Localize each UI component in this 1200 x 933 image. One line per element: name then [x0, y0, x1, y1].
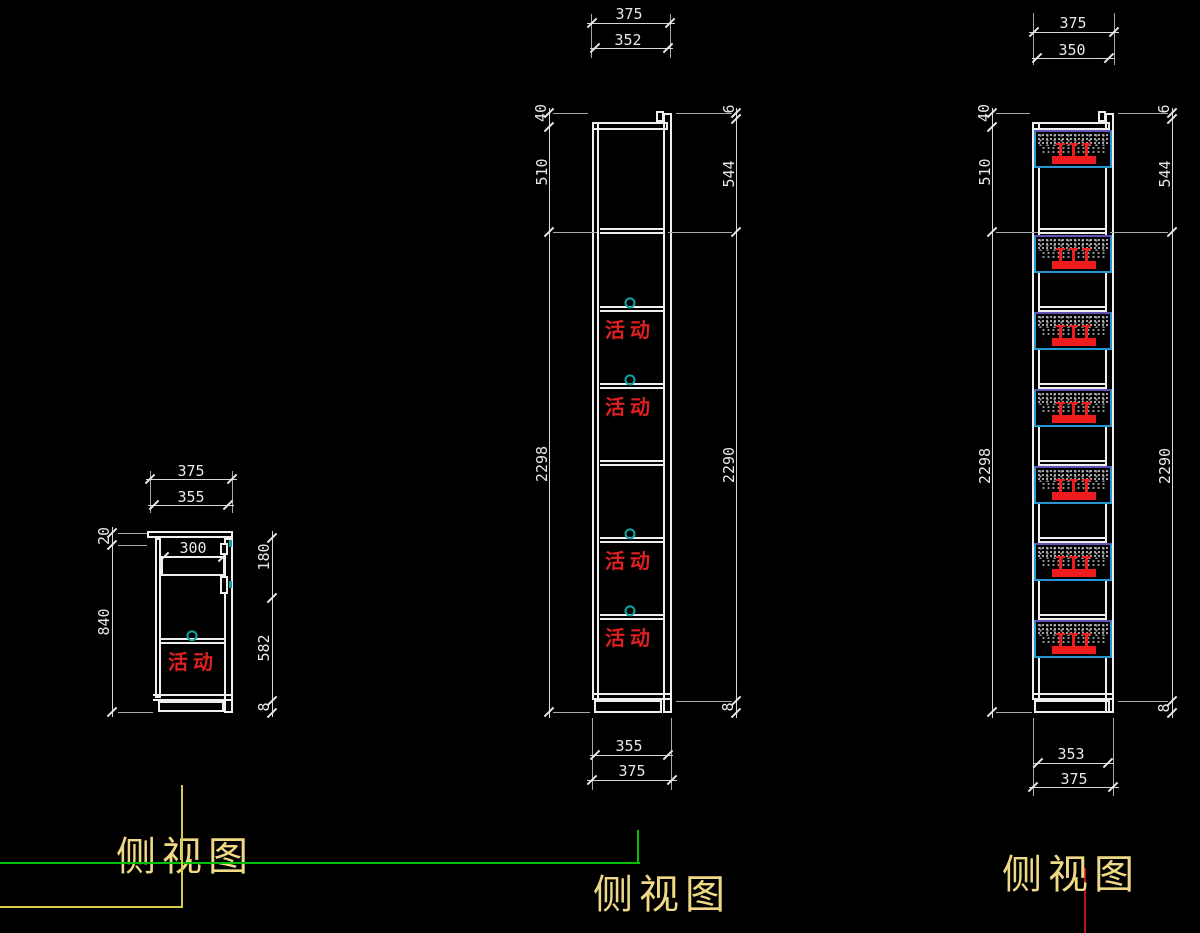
basket-bracket-bar — [1052, 492, 1096, 500]
basket-bracket-bar — [1052, 569, 1096, 577]
dim-text[interactable]: 6 — [1155, 104, 1173, 113]
dim-line — [590, 755, 673, 756]
basket-bracket-bar — [1052, 261, 1096, 269]
basket-bracket-cap — [1069, 556, 1078, 558]
dim-line — [736, 108, 737, 718]
layout-line-yellow-h[interactable] — [0, 906, 183, 908]
view-title[interactable]: 侧视图 — [116, 824, 254, 882]
cad-canvas: 375 355 300 活动 20 840 — [0, 0, 1200, 933]
basket-bracket-cap — [1082, 143, 1091, 145]
cabinet-top-board[interactable] — [1032, 122, 1110, 130]
cabinet-base[interactable] — [594, 700, 662, 713]
cabinet-top-board[interactable] — [592, 122, 668, 130]
shoe-basket[interactable] — [1034, 235, 1112, 273]
dim-text[interactable]: 6 — [720, 104, 738, 113]
extension-line — [668, 232, 732, 233]
basket-bracket-prong — [1059, 145, 1062, 156]
dim-text[interactable]: 2290 — [1156, 448, 1174, 484]
basket-bracket-prong — [1072, 404, 1075, 415]
basket-bracket-prong — [1085, 327, 1088, 338]
basket-bracket-prong — [1085, 558, 1088, 569]
shelf-line — [1040, 460, 1105, 462]
dim-text[interactable]: 840 — [95, 608, 113, 635]
basket-bracket-cap — [1082, 633, 1091, 635]
extension-line — [118, 545, 147, 546]
basket-bracket-prong — [1059, 481, 1062, 492]
shelf-line — [600, 460, 663, 462]
shoe-basket[interactable] — [1034, 543, 1112, 581]
basket-bracket-cap — [1069, 633, 1078, 635]
extension-line — [996, 113, 1030, 114]
cabinet-top-board[interactable] — [147, 531, 233, 538]
view-title[interactable]: 侧视图 — [593, 862, 731, 920]
basket-bracket-cap — [1069, 248, 1078, 250]
dim-text[interactable]: 20 — [95, 527, 113, 545]
dim-line — [549, 108, 550, 718]
shelf-pin-marker — [625, 528, 636, 539]
basket-bracket-prong — [1059, 635, 1062, 646]
dim-text[interactable]: 510 — [976, 158, 994, 185]
basket-bracket-cap — [1056, 248, 1065, 250]
shelf-line — [600, 387, 663, 389]
basket-bracket-cap — [1056, 556, 1065, 558]
extension-line — [1114, 13, 1115, 65]
dim-text[interactable]: 353 — [1057, 745, 1084, 763]
shelf-line — [600, 232, 663, 234]
extension-line — [1118, 701, 1168, 702]
dim-line — [587, 780, 677, 781]
dim-line — [1029, 32, 1119, 33]
extension-line — [1110, 232, 1168, 233]
basket-bracket-prong — [1085, 404, 1088, 415]
basket-bracket-cap — [1069, 402, 1078, 404]
dim-text[interactable]: 375 — [618, 762, 645, 780]
basket-bracket-prong — [1072, 558, 1075, 569]
wall-notch — [220, 576, 228, 594]
extension-line — [118, 712, 153, 713]
basket-bracket-cap — [1056, 479, 1065, 481]
dim-text[interactable]: 8 — [255, 702, 273, 711]
basket-bracket-cap — [1082, 325, 1091, 327]
cabinet-base[interactable] — [1034, 700, 1110, 713]
movable-shelf-label[interactable]: 活动 — [605, 622, 655, 651]
extension-line — [553, 712, 590, 713]
shelf-line — [1040, 232, 1105, 234]
shelf-line — [1040, 614, 1105, 616]
basket-bracket-cap — [1082, 556, 1091, 558]
extension-line — [553, 113, 588, 114]
basket-bracket-cap — [1069, 479, 1078, 481]
dim-text[interactable]: 375 — [615, 5, 642, 23]
movable-shelf-label[interactable]: 活动 — [168, 646, 218, 675]
basket-bracket-prong — [1085, 635, 1088, 646]
shelf-pin-marker — [625, 374, 636, 385]
dim-text[interactable]: 8 — [1155, 703, 1173, 712]
basket-bracket-prong — [1085, 481, 1088, 492]
basket-bracket-prong — [1059, 327, 1062, 338]
shelf-pin-marker — [625, 297, 636, 308]
shelf-line — [600, 464, 663, 466]
dim-text[interactable]: 180 — [255, 543, 273, 570]
dim-text[interactable]: 40 — [532, 104, 550, 122]
dim-text[interactable]: 2298 — [976, 448, 994, 484]
dim-text[interactable]: 510 — [533, 158, 551, 185]
cabinet-base[interactable] — [158, 701, 224, 712]
dim-text[interactable]: 582 — [255, 634, 273, 661]
shoe-basket[interactable] — [1034, 466, 1112, 504]
basket-bracket-cap — [1082, 479, 1091, 481]
basket-bracket-prong — [1085, 250, 1088, 261]
basket-bracket-cap — [1069, 325, 1078, 327]
extension-line — [996, 232, 1038, 233]
movable-shelf-label[interactable]: 活动 — [605, 391, 655, 420]
extension-line — [553, 232, 597, 233]
shelf-pin-marker — [625, 605, 636, 616]
basket-bracket-prong — [1059, 250, 1062, 261]
basket-bracket-prong — [1059, 404, 1062, 415]
basket-bracket-cap — [1056, 633, 1065, 635]
basket-bracket-bar — [1052, 338, 1096, 346]
shoe-basket[interactable] — [1034, 620, 1112, 658]
basket-bracket-prong — [1072, 145, 1075, 156]
cabinet-right-wall[interactable] — [663, 113, 672, 713]
basket-bracket-cap — [1082, 248, 1091, 250]
dim-text[interactable]: 2298 — [533, 446, 551, 482]
shelf-line — [1040, 383, 1105, 385]
extension-line — [118, 533, 147, 534]
basket-bracket-prong — [1072, 635, 1075, 646]
basket-bracket-cap — [1056, 143, 1065, 145]
shoe-basket[interactable] — [1034, 312, 1112, 350]
shelf-line — [600, 228, 663, 230]
dim-line — [1034, 763, 1114, 764]
dim-text[interactable]: 8 — [719, 702, 737, 711]
basket-bracket-prong — [1072, 250, 1075, 261]
layout-line-yellow-v[interactable] — [181, 785, 183, 908]
basket-bracket-prong — [1072, 481, 1075, 492]
shelf-line — [161, 642, 225, 644]
dim-text[interactable]: 350 — [1058, 41, 1085, 59]
basket-bracket-prong — [1059, 558, 1062, 569]
layout-line-green-h[interactable] — [0, 862, 640, 864]
extension-line — [996, 712, 1032, 713]
cabinet-left-wall[interactable] — [592, 122, 599, 700]
dim-text[interactable]: 300 — [179, 539, 206, 557]
dim-text[interactable]: 544 — [1156, 160, 1174, 187]
basket-bracket-bar — [1052, 156, 1096, 164]
basket-bracket-cap — [1056, 402, 1065, 404]
cabinet-bottom-line — [1032, 693, 1114, 695]
shelf-line — [1040, 306, 1105, 308]
dim-line — [992, 108, 993, 718]
drawer-box[interactable] — [161, 556, 225, 576]
dim-text[interactable]: 355 — [177, 488, 204, 506]
dim-line — [587, 23, 675, 24]
dim-text[interactable]: 544 — [720, 160, 738, 187]
layout-line-green-v[interactable] — [637, 830, 639, 864]
shelf-line — [600, 541, 663, 543]
basket-bracket-cap — [1069, 143, 1078, 145]
shoe-basket[interactable] — [1034, 130, 1112, 168]
shoe-basket[interactable] — [1034, 389, 1112, 427]
notch-marker — [229, 581, 232, 588]
dim-text[interactable]: 355 — [615, 737, 642, 755]
dim-text[interactable]: 375 — [1060, 770, 1087, 788]
basket-bracket-prong — [1072, 327, 1075, 338]
dim-text[interactable]: 2290 — [720, 447, 738, 483]
basket-bracket-cap — [1056, 325, 1065, 327]
dim-text[interactable]: 375 — [1059, 14, 1086, 32]
movable-shelf-label[interactable]: 活动 — [605, 545, 655, 574]
basket-bracket-prong — [1085, 145, 1088, 156]
cabinet-right-wall[interactable] — [224, 538, 233, 713]
basket-bracket-cap — [1082, 402, 1091, 404]
movable-shelf-label[interactable]: 活动 — [605, 314, 655, 343]
view-title[interactable]: 侧视图 — [1002, 842, 1140, 900]
cabinet-bottom-line — [153, 694, 233, 696]
shelf-line — [1040, 537, 1105, 539]
cabinet-bottom-line — [592, 693, 672, 695]
basket-bracket-bar — [1052, 646, 1096, 654]
notch-marker — [229, 540, 232, 547]
shelf-line — [600, 310, 663, 312]
shelf-line — [1040, 228, 1105, 230]
dim-text[interactable]: 352 — [614, 31, 641, 49]
dim-line — [1172, 108, 1173, 718]
dim-text[interactable]: 40 — [975, 104, 993, 122]
shelf-pin-marker — [187, 630, 198, 641]
basket-bracket-bar — [1052, 415, 1096, 423]
dim-text[interactable]: 375 — [177, 462, 204, 480]
shelf-line — [600, 618, 663, 620]
